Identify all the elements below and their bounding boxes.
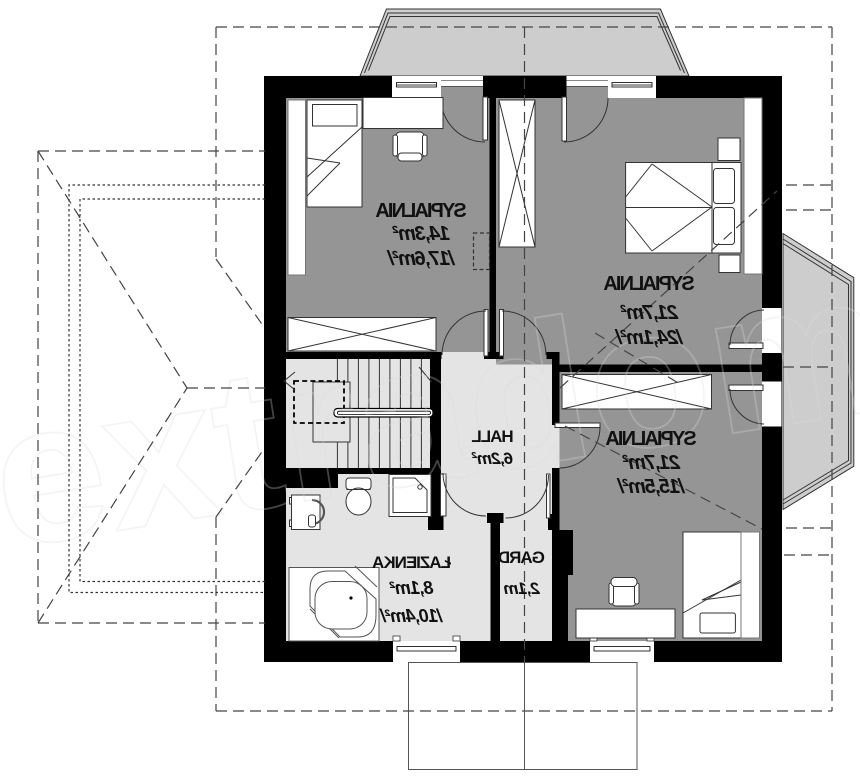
svg-text:21,7m²: 21,7m² bbox=[619, 302, 679, 324]
svg-text:8,1m²: 8,1m² bbox=[389, 578, 434, 598]
svg-text:SYPIALNIA: SYPIALNIA bbox=[376, 200, 467, 222]
svg-text:/10,4m²/: /10,4m²/ bbox=[379, 606, 443, 626]
svg-text:6,2m²: 6,2m² bbox=[471, 449, 514, 468]
svg-text:GARD.: GARD. bbox=[495, 548, 545, 567]
svg-text:2,1m: 2,1m bbox=[504, 579, 541, 598]
svg-text:/17,6m²/: /17,6m²/ bbox=[386, 248, 456, 270]
svg-text:SYPIALNIA: SYPIALNIA bbox=[606, 428, 697, 450]
svg-text:/15,5m²/: /15,5m²/ bbox=[616, 476, 686, 498]
svg-text:/24,1m²/: /24,1m²/ bbox=[614, 327, 684, 349]
svg-text:HALL: HALL bbox=[472, 427, 514, 446]
svg-text:21,7m²: 21,7m² bbox=[621, 452, 681, 474]
svg-text:ŁAZIENKA: ŁAZIENKA bbox=[372, 553, 451, 572]
svg-text:14,3m²: 14,3m² bbox=[391, 223, 450, 245]
svg-text:SYPIALNIA: SYPIALNIA bbox=[604, 273, 695, 295]
